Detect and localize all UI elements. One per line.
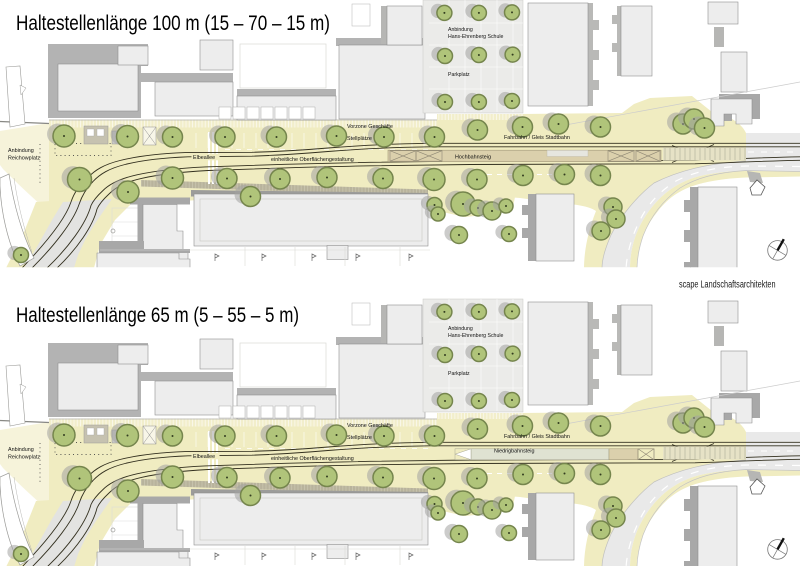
svg-text:Elbeallee: Elbeallee (193, 155, 215, 161)
svg-text:Hochbahnsteig: Hochbahnsteig (455, 155, 491, 161)
svg-text:scape Landschaftsarchitekten: scape Landschaftsarchitekten (679, 280, 776, 291)
svg-text:Haltestellenlänge 65 m (5 – 55: Haltestellenlänge 65 m (5 – 55 – 5 m) (16, 304, 299, 327)
svg-text:Vorzone Geschäfte: Vorzone Geschäfte (347, 124, 393, 130)
svg-text:Fahrbahn / Gleis Stadtbahn: Fahrbahn / Gleis Stadtbahn (504, 434, 570, 440)
svg-text:einheitliche Oberflächengestal: einheitliche Oberflächengestaltung (271, 456, 354, 462)
svg-text:Hans-Ehrenberg Schule: Hans-Ehrenberg Schule (448, 34, 503, 40)
svg-text:Haltestellenlänge 100 m (15 –: Haltestellenlänge 100 m (15 – 70 – 15 m) (16, 12, 330, 35)
svg-text:Vorzone Geschäfte: Vorzone Geschäfte (347, 423, 393, 429)
svg-text:Parkplatz: Parkplatz (448, 72, 470, 78)
svg-text:Niedrigbahnsteig: Niedrigbahnsteig (494, 448, 534, 454)
svg-text:einheitliche Oberflächengestal: einheitliche Oberflächengestaltung (271, 157, 354, 163)
svg-text:Stellplätze: Stellplätze (347, 435, 372, 441)
svg-text:Hans-Ehrenberg Schule: Hans-Ehrenberg Schule (448, 333, 503, 339)
svg-text:Anbindung: Anbindung (448, 27, 473, 33)
svg-text:Elbeallee: Elbeallee (193, 454, 215, 460)
svg-text:Anbindung: Anbindung (448, 326, 473, 332)
svg-text:Parkplatz: Parkplatz (448, 371, 470, 377)
svg-text:Stellplätze: Stellplätze (347, 136, 372, 142)
svg-text:Fahrbahn / Gleis Stadtbahn: Fahrbahn / Gleis Stadtbahn (504, 135, 570, 141)
